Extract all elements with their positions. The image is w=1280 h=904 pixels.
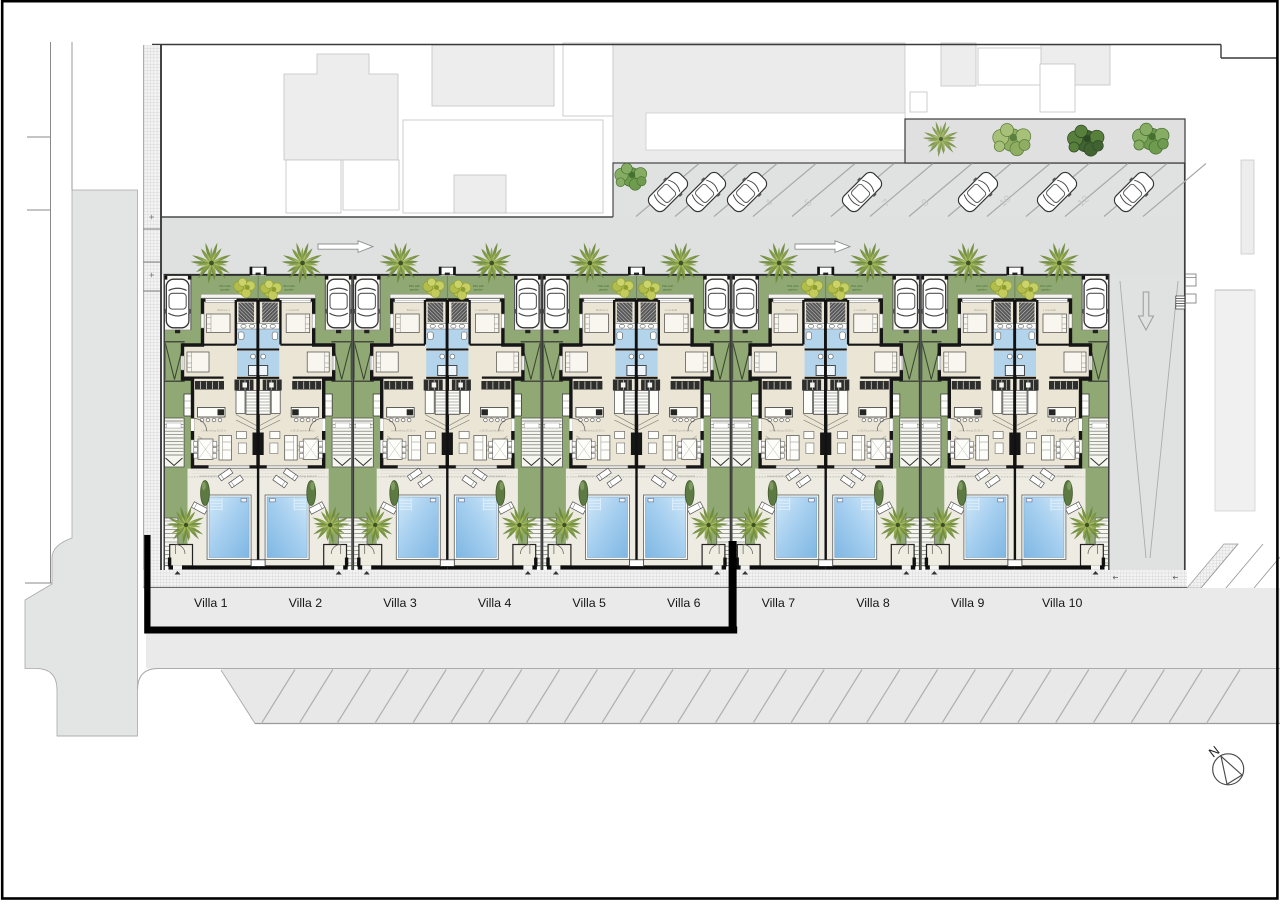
svg-text:Villa 10: Villa 10 [1042,596,1083,610]
svg-text:garden: garden [221,288,231,292]
svg-text:Villa 4: Villa 4 [478,596,512,610]
svg-text:garden: garden [474,288,484,292]
svg-text:garden: garden [852,288,862,292]
svg-text:garden: garden [410,288,420,292]
svg-text:garden: garden [599,288,609,292]
svg-text:garden: garden [977,288,987,292]
svg-text:garden: garden [1041,288,1051,292]
svg-text:Villa 1: Villa 1 [194,596,228,610]
svg-text:Villa 8: Villa 8 [856,596,890,610]
svg-text:garden: garden [788,288,798,292]
svg-text:Villa 6: Villa 6 [667,596,701,610]
svg-text:garden: garden [285,288,295,292]
svg-text:Villa 5: Villa 5 [572,596,606,610]
svg-text:Villa 9: Villa 9 [951,596,985,610]
svg-text:Villa 2: Villa 2 [289,596,323,610]
svg-text:Villa 3: Villa 3 [383,596,417,610]
svg-text:garden: garden [663,288,673,292]
svg-text:Villa 7: Villa 7 [762,596,796,610]
